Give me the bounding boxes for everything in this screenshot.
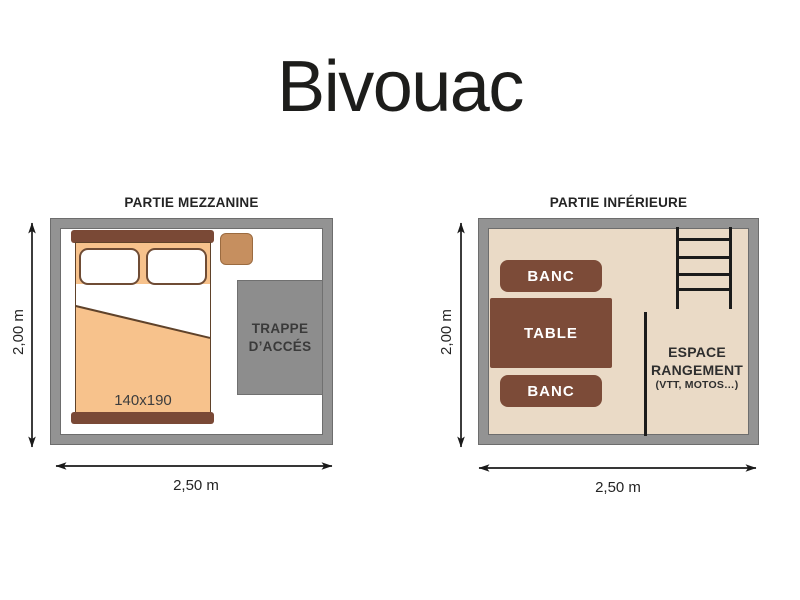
page-title: Bivouac	[0, 46, 800, 128]
ladder-rung	[676, 238, 732, 241]
bed-footboard	[71, 412, 214, 424]
inferieure-height-arrow-icon	[453, 220, 469, 450]
inferieure-height-label: 2,00 m	[438, 302, 454, 362]
bench-bottom: BANC	[500, 375, 602, 407]
storage-label-line2: RANGEMENT	[645, 362, 749, 380]
storage-label-line1: ESPACE	[645, 344, 749, 362]
storage-area-label: ESPACE RANGEMENT (VTT, MOTOS…)	[645, 344, 749, 393]
access-hatch-label-line1: TRAPPE	[252, 320, 309, 338]
storage-label-line3: (VTT, MOTOS…)	[645, 379, 749, 393]
ladder-rung	[676, 273, 732, 276]
pillow-right	[146, 248, 207, 285]
bench-bottom-label: BANC	[527, 383, 574, 400]
inferieure-width-label: 2,50 m	[568, 479, 668, 496]
bed-size-label: 140x190	[76, 392, 210, 409]
bench-top: BANC	[500, 260, 602, 292]
mezzanine-plan-title: PARTIE MEZZANINE	[50, 195, 333, 210]
table: TABLE	[490, 298, 612, 368]
bed: 140x190	[75, 242, 211, 414]
bench-top-label: BANC	[527, 268, 574, 285]
inferieure-width-arrow-icon	[476, 460, 759, 476]
access-hatch-label-line2: D’ACCÉS	[249, 338, 312, 356]
ladder-rung	[676, 288, 732, 291]
floor-plan-page: Bivouac PARTIE MEZZANINE 140x190 TRAPPE …	[0, 0, 800, 600]
access-hatch: TRAPPE D’ACCÉS	[237, 280, 323, 395]
mezzanine-height-label: 2,00 m	[10, 302, 26, 362]
inferieure-plan-title: PARTIE INFÉRIEURE	[478, 195, 759, 210]
mezzanine-width-arrow-icon	[53, 458, 335, 474]
pillow-left	[79, 248, 140, 285]
stool	[220, 233, 253, 265]
ladder-rung	[676, 256, 732, 259]
table-label: TABLE	[524, 325, 578, 342]
mezzanine-width-label: 2,50 m	[146, 477, 246, 494]
